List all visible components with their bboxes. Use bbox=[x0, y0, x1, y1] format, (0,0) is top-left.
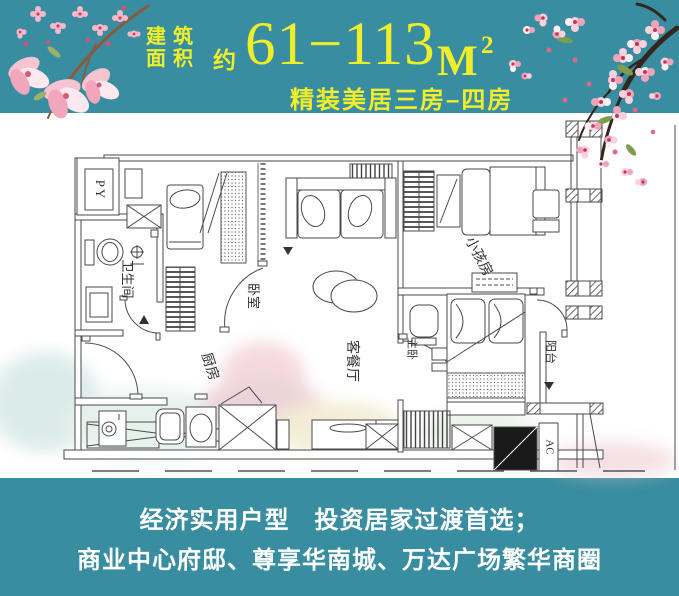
approx-label: 约 bbox=[213, 41, 236, 75]
room-label-balcony: 阳台 bbox=[543, 340, 558, 364]
footer-line1: 经济实用户型 投资居家过渡首选； bbox=[0, 500, 679, 535]
room-label-py: PY bbox=[93, 180, 108, 201]
room-label-ac: AC bbox=[543, 439, 555, 454]
room-label-bedroom: 卧室 bbox=[246, 283, 261, 309]
area-label-line2: 面积 bbox=[146, 48, 200, 70]
room-label-master: 主卧 bbox=[405, 338, 418, 360]
area-unit: M bbox=[437, 37, 478, 86]
area-label-line1: 建筑 bbox=[146, 26, 200, 48]
header-banner: 建筑 面积 约 61−113 M 2 精装美居三房–四房 bbox=[0, 0, 679, 113]
footer-line2: 商业中心府邸、尊享华南城、万达广场繁华商圈 bbox=[0, 540, 679, 575]
footer-banner: 经济实用户型 投资居家过渡首选； 商业中心府邸、尊享华南城、万达广场繁华商圈 bbox=[0, 478, 679, 596]
room-label-living: 客餐厅 bbox=[344, 340, 361, 382]
real-estate-poster: PY 卫生间 bbox=[0, 0, 679, 596]
area-value: 61−113 bbox=[245, 10, 436, 80]
area-unit-exponent: 2 bbox=[481, 32, 494, 60]
room-label-bathroom: 卫生间 bbox=[120, 259, 135, 298]
area-label: 建筑 面积 bbox=[146, 26, 200, 70]
subtitle: 精装美居三房–四房 bbox=[290, 80, 513, 115]
